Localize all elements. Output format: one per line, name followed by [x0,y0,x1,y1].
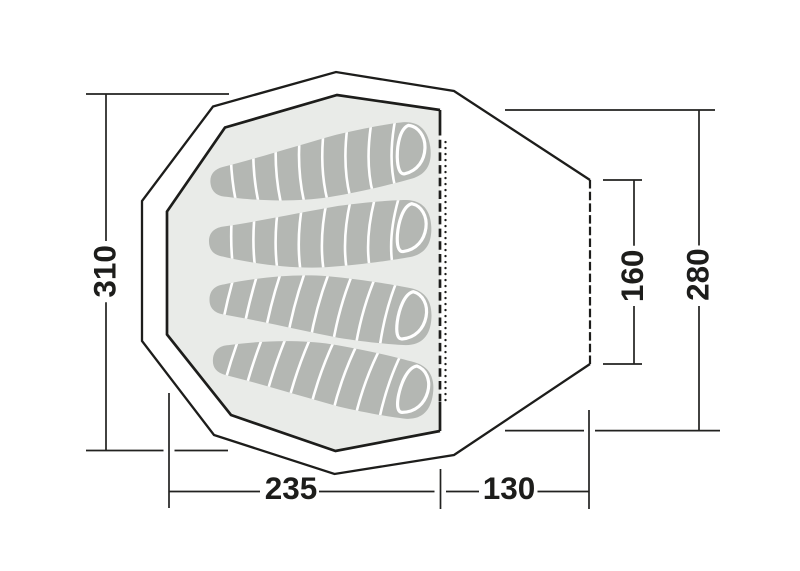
svg-text:235: 235 [265,470,318,506]
svg-text:160: 160 [614,250,650,303]
svg-text:310: 310 [87,245,123,298]
svg-text:280: 280 [680,248,716,301]
svg-text:130: 130 [483,470,536,506]
